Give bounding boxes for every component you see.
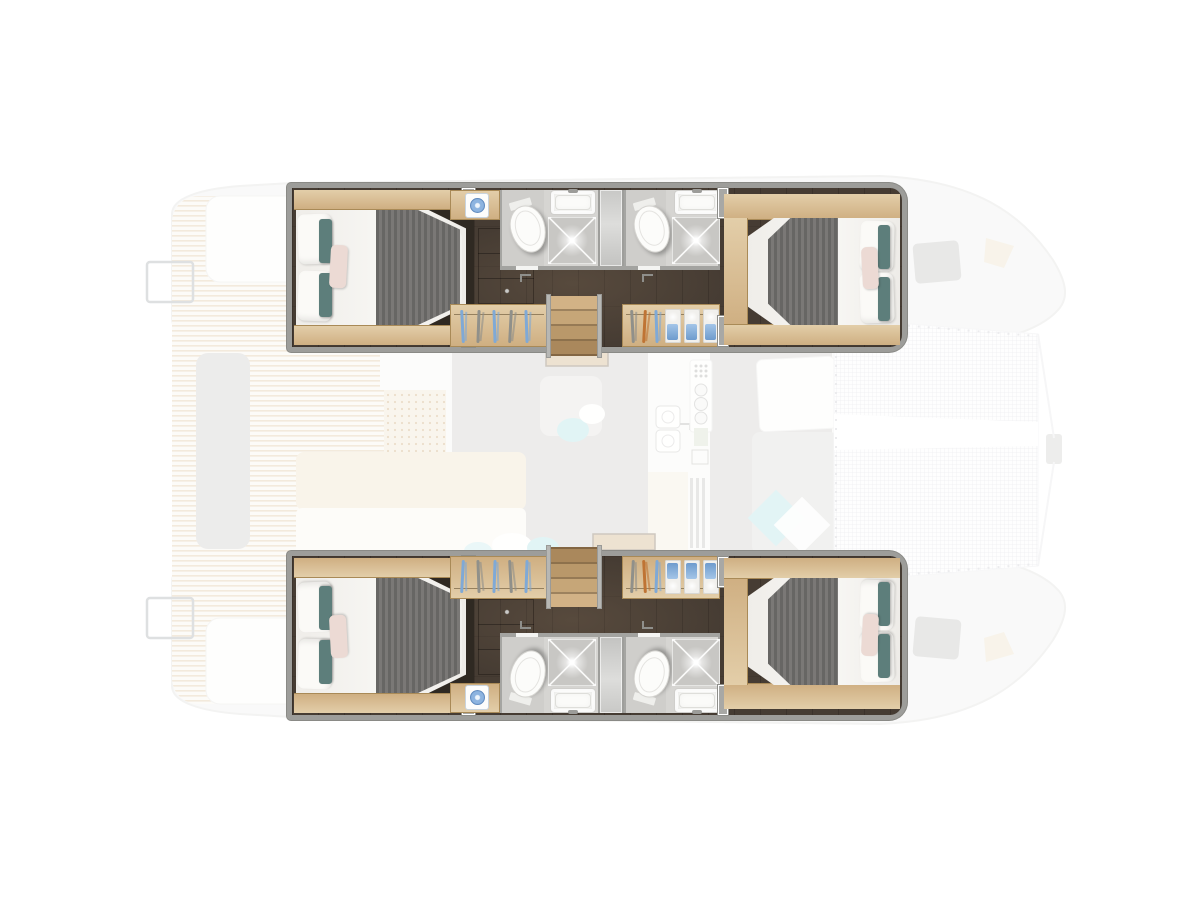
linen-locker [622, 556, 720, 599]
door-swing [642, 274, 653, 282]
starboard-hull [287, 551, 907, 720]
linen-shelf [684, 309, 700, 343]
linen-locker [622, 304, 720, 347]
hanger-icon [524, 310, 528, 343]
stair-step [551, 562, 597, 577]
aft-cabin-wood-trim [294, 558, 462, 578]
washing-machine-icon [465, 193, 489, 218]
faded-deck-plan [0, 0, 1200, 900]
washer-cabinet [450, 683, 500, 713]
hanger-icon [460, 560, 465, 593]
hanger-icon [476, 560, 480, 593]
hanger-icon [476, 310, 480, 343]
pink-pillow [329, 245, 348, 289]
hanger-icon [654, 310, 658, 343]
stair-rail [597, 294, 602, 358]
hanger-icon [508, 560, 513, 593]
aft-berth-blanket [376, 578, 460, 693]
aft-berth-blanket [376, 210, 460, 325]
stair-rail [597, 545, 602, 609]
washbasin [550, 190, 596, 215]
stair-step [551, 311, 597, 326]
pink-pillow [329, 615, 348, 659]
trampoline [834, 318, 1038, 582]
saloon-cabinet [380, 352, 450, 390]
burner [695, 398, 708, 411]
stair-step [551, 326, 597, 341]
aft-cabin-wood-trim [294, 325, 462, 345]
bridle-line [1038, 334, 1054, 438]
shower-room [500, 637, 598, 713]
linen-shelf [684, 560, 700, 594]
burner [695, 384, 707, 396]
dinette-table [296, 508, 526, 554]
aft-cabin-wood-trim [294, 190, 462, 210]
fwd-berth-blanket [768, 218, 838, 325]
shower-room [624, 637, 720, 713]
linen-shelf [665, 309, 681, 343]
white-cushion [579, 404, 605, 424]
hanger-icon [642, 560, 647, 593]
hanger-icon [524, 560, 528, 593]
bridle-line [1038, 462, 1054, 566]
linen-shelf [703, 309, 719, 343]
washer-cabinet [450, 190, 500, 220]
fwd-cabin-wood-trim [724, 194, 900, 220]
sliding-door [598, 190, 624, 266]
galley-board [694, 428, 708, 446]
door-opening [516, 633, 538, 637]
shower-room [500, 190, 598, 266]
washbasin [674, 190, 720, 215]
shower-room [624, 190, 720, 266]
hanger-icon [630, 310, 635, 343]
linen-shelf [703, 560, 719, 594]
stair-step [551, 577, 597, 592]
fwd-berth-blanket [768, 578, 838, 685]
hanger-icon [492, 310, 496, 343]
stair-step [551, 547, 597, 562]
shower-tray [548, 639, 596, 686]
bow-hatch [912, 616, 961, 660]
shower-tray [672, 639, 720, 686]
galley-sink [656, 430, 680, 452]
door-swing [520, 621, 531, 629]
shower-tray [672, 217, 720, 264]
hanger-icon [460, 310, 465, 343]
fwd-cabin-wood-trim [724, 558, 900, 579]
bowsprit [1046, 434, 1062, 464]
galley-sink [656, 406, 680, 428]
pink-pillow [861, 247, 879, 290]
door-swing [642, 621, 653, 629]
fwd-cabin-wood-trim [724, 577, 748, 685]
port-hull [287, 183, 907, 352]
sunpad [756, 356, 838, 432]
door-opening [638, 633, 660, 637]
hanger-icon [630, 560, 635, 593]
stair-step [551, 341, 597, 356]
wardrobe [450, 304, 548, 347]
bow-hatch [912, 240, 961, 284]
shower-tray [548, 217, 596, 264]
door-opening [638, 266, 660, 270]
fwd-cabin-wood-trim [724, 324, 900, 345]
sliding-door [598, 637, 624, 713]
washing-machine-icon [465, 685, 489, 710]
companionway-hatch [593, 534, 655, 550]
stair-step [551, 296, 597, 311]
burner [695, 412, 707, 424]
teal-pillow [878, 634, 890, 678]
washbasin [674, 688, 720, 713]
companionway-stairs [546, 294, 602, 358]
hanger-icon [492, 560, 496, 593]
teal-pillow [878, 225, 890, 269]
dinette-sofa [296, 452, 526, 510]
washbasin [550, 688, 596, 713]
aft-cabin-wood-trim [294, 693, 462, 713]
fwd-cabin-wood-trim [724, 683, 900, 709]
wardrobe [450, 556, 548, 599]
boat-layout-plan [0, 0, 1200, 900]
hanger-icon [508, 310, 513, 343]
linen-shelf [665, 560, 681, 594]
companionway-stairs [546, 545, 602, 609]
pink-pillow [861, 614, 879, 657]
teal-pillow [878, 277, 890, 321]
hanger-icon [654, 560, 658, 593]
door-opening [516, 266, 538, 270]
stair-step [551, 592, 597, 607]
cockpit-bench [196, 353, 250, 549]
door-swing [520, 274, 531, 282]
hanger-icon [642, 310, 647, 343]
fwd-cabin-wood-trim [724, 218, 748, 326]
teal-pillow [878, 582, 890, 626]
